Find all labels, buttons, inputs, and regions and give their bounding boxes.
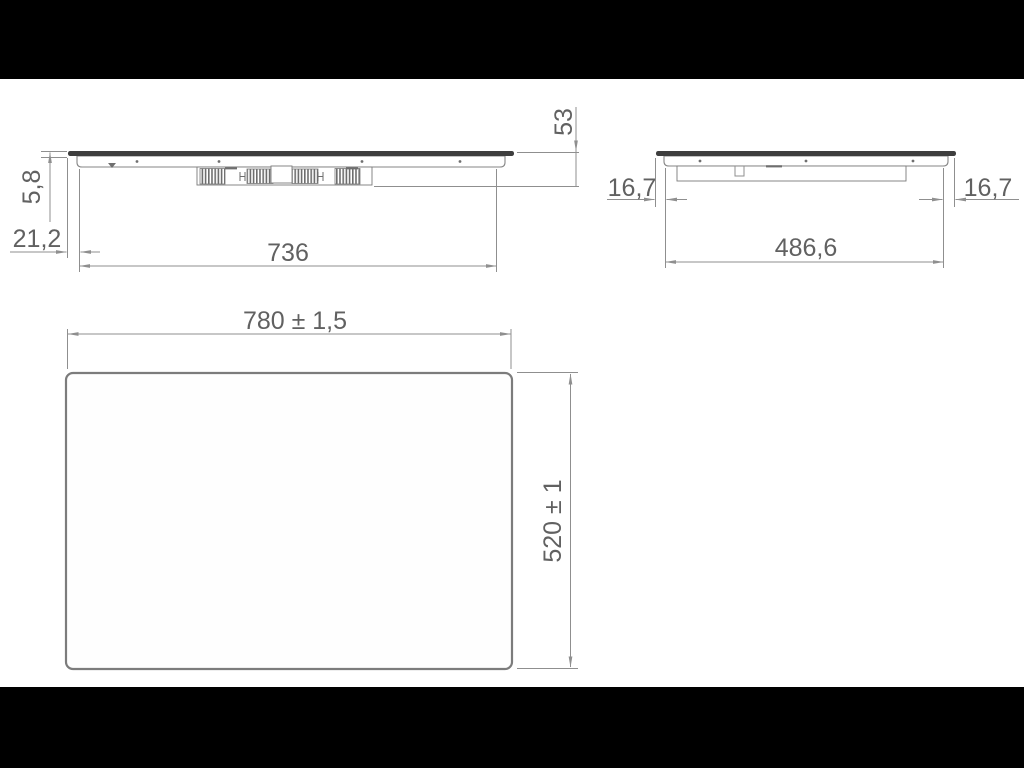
screenshot-stage: 5,8 21,2 736 53 [0, 0, 1024, 768]
dim-label-glass-thickness: 5,8 [18, 170, 46, 205]
front-body-pan [77, 156, 505, 167]
technical-drawing-canvas: 5,8 21,2 736 53 [0, 0, 1024, 768]
letterbox-top [0, 0, 1024, 79]
dim-label-overall-width: 780 ± 1,5 [243, 307, 347, 335]
side-glass-plate [656, 151, 956, 156]
front-glass-plate [68, 151, 514, 156]
dim-label-overhang-left: 16,7 [608, 174, 657, 202]
letterbox-bottom [0, 687, 1024, 768]
dim-label-overhang-right: 16,7 [964, 174, 1013, 202]
dim-label-body-width: 736 [267, 239, 309, 267]
dim-label-overall-depth: 520 ± 1 [539, 479, 567, 562]
top-glass-outline [66, 373, 512, 669]
dim-label-total-height: 53 [550, 108, 578, 136]
front-heatsink-housing [197, 166, 372, 185]
dim-label-edge-offset: 21,2 [13, 225, 62, 253]
dim-label-body-depth: 486,6 [775, 234, 838, 262]
side-housing-box [677, 166, 906, 181]
